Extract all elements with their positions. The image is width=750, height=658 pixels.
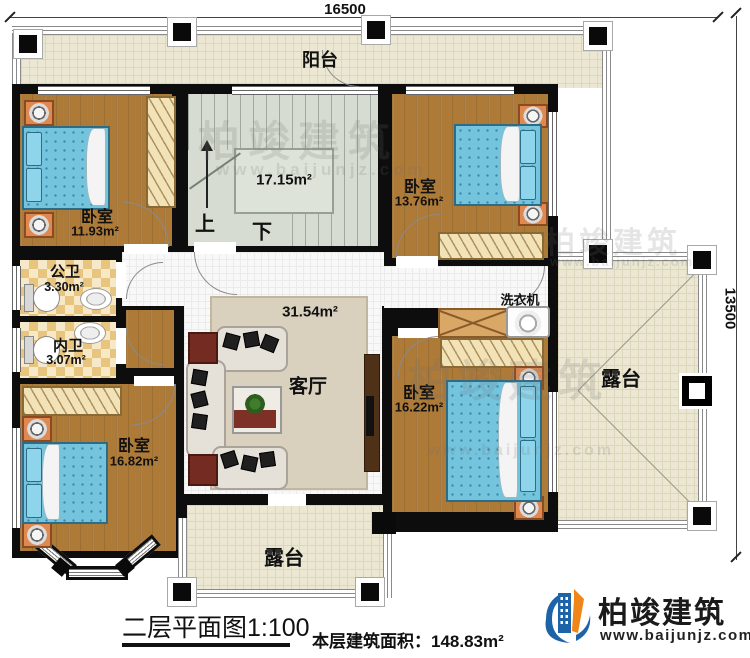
balcony-railing-right (602, 33, 611, 254)
balcony-railing-top (12, 26, 611, 35)
door-gap (268, 494, 306, 506)
nightstand (22, 416, 52, 442)
bed-pillow (520, 386, 536, 438)
private-bathroom-area: 3.07m² (46, 353, 86, 367)
column (356, 578, 384, 606)
bed-pillow (520, 440, 536, 492)
sofa-pillow (241, 455, 259, 473)
end-table (188, 332, 218, 364)
plant (245, 394, 265, 414)
end-table (188, 454, 218, 486)
column (688, 246, 716, 274)
wardrobe (146, 96, 176, 208)
window (38, 86, 150, 95)
column (688, 502, 716, 530)
bed-sheet (86, 128, 106, 206)
bedroom-top-left-area: 11.93m² (71, 224, 119, 239)
sofa-pillow (191, 369, 208, 386)
wardrobe (440, 338, 544, 368)
sink (80, 288, 112, 310)
column (372, 512, 396, 534)
laundry-cabinet (438, 308, 508, 338)
window (548, 112, 558, 216)
bed-pillow (26, 168, 42, 202)
bed-pillow (520, 166, 536, 200)
brand-website: www.baijunjz.com (600, 627, 750, 644)
plan-title-underline (122, 643, 290, 647)
window (548, 392, 558, 492)
bed-pillow (26, 484, 42, 518)
wardrobe (22, 386, 122, 416)
living-room-label: 客厅 (289, 372, 327, 399)
nightstand (24, 100, 54, 126)
plan-title: 二层平面图1:100 (122, 608, 310, 644)
bed-sheet (500, 126, 520, 202)
brand-name: 柏竣建筑 (598, 588, 726, 632)
column (168, 18, 196, 46)
balcony-label: 阳台 (302, 46, 338, 72)
wardrobe (438, 232, 544, 260)
stairwell-area: 17.15m² (256, 172, 312, 189)
bed-pillow (520, 130, 536, 164)
nightstand (22, 522, 52, 548)
bed-pillow (26, 132, 42, 166)
column (584, 240, 612, 268)
public-bathroom-area: 3.30m² (44, 280, 84, 294)
sofa-pillow (243, 331, 260, 348)
floor-area-text: 本层建筑面积：148.83m² (312, 627, 504, 652)
window (232, 86, 378, 95)
column (168, 578, 196, 606)
column (14, 30, 42, 58)
brand-logo-icon (538, 584, 594, 648)
nightstand (24, 212, 54, 238)
column (362, 16, 390, 44)
terrace-right-label: 露台 (601, 363, 641, 392)
tv (366, 396, 374, 436)
washing-machine (506, 306, 550, 338)
floor-plan-canvas: 16500 13500 (0, 0, 750, 658)
terrace-right-railing-bottom (558, 520, 707, 529)
stair-up-arrow-line (206, 150, 208, 208)
stair-down-label: 下 (252, 216, 272, 245)
window (12, 328, 21, 372)
window (406, 86, 514, 95)
public-bathroom-label: 公卫 (50, 261, 80, 282)
stair-up-arrow-head (201, 140, 213, 151)
door-gap (116, 262, 126, 298)
column-open (682, 376, 712, 406)
window (12, 428, 21, 528)
window (12, 266, 21, 310)
bed-pillow (26, 448, 42, 482)
bedroom-bottom-left-label: 卧室 (118, 432, 150, 456)
door-gap (116, 328, 126, 364)
right-dimension-label: 13500 (722, 279, 739, 339)
terrace-right-railing-top (558, 252, 707, 261)
terrace-bottom-label: 露台 (264, 542, 304, 571)
stair-up-label: 上 (195, 208, 215, 237)
laundry-label: 洗衣机 (500, 290, 539, 309)
door-gap (396, 256, 438, 268)
bedroom-bottom-left-area: 16.82m² (110, 454, 158, 469)
bed-sheet (498, 382, 518, 498)
sofa-pillow (191, 413, 208, 430)
brand-logo-svg (538, 584, 594, 648)
living-room-area: 31.54m² (282, 304, 338, 321)
sofa-pillow (259, 451, 276, 468)
bedroom-right-area: 16.22m² (395, 400, 443, 415)
column (584, 22, 612, 50)
top-dimension-label: 16500 (324, 1, 366, 18)
bed-sheet (42, 444, 60, 520)
bedroom-top-right-area: 13.76m² (395, 194, 443, 209)
